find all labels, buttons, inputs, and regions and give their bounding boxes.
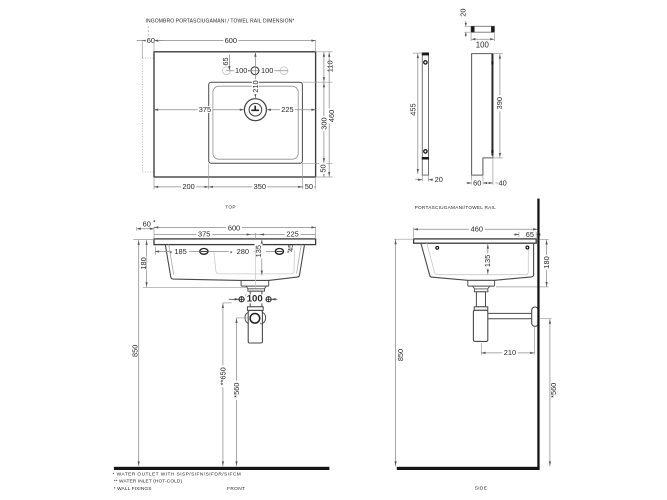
svg-text:50: 50 [318, 164, 327, 172]
svg-text:* WALL FIXINGS: * WALL FIXINGS [114, 486, 152, 492]
svg-text:100: 100 [476, 40, 490, 49]
svg-text:135: 135 [483, 255, 492, 267]
svg-text:460: 460 [327, 110, 336, 122]
svg-text:50: 50 [305, 182, 313, 191]
svg-text:65: 65 [221, 57, 230, 65]
svg-text:185: 185 [174, 247, 186, 256]
svg-text:20: 20 [435, 175, 443, 184]
svg-text:INGOMBRO PORTASCIUGAMANI / TOW: INGOMBRO PORTASCIUGAMANI / TOWEL RAIL DI… [146, 19, 295, 25]
svg-text:100: 100 [261, 66, 273, 75]
svg-text:350: 350 [254, 182, 266, 191]
svg-text:180: 180 [139, 257, 148, 269]
svg-text:*560: *560 [232, 383, 241, 398]
svg-text:110: 110 [326, 60, 335, 72]
svg-text:390: 390 [495, 97, 504, 109]
svg-text:40: 40 [498, 178, 506, 187]
svg-text:60: 60 [473, 178, 481, 187]
svg-text:60: 60 [143, 220, 151, 229]
svg-text:**650: **650 [218, 367, 227, 385]
svg-text:65: 65 [526, 230, 534, 239]
svg-text:280: 280 [237, 247, 249, 256]
svg-text:210: 210 [251, 80, 260, 92]
svg-text:PORTASCIUGAMANI/TOWEL RAIL: PORTASCIUGAMANI/TOWEL RAIL [415, 205, 496, 210]
svg-text:SIDE: SIDE [475, 485, 487, 491]
svg-text:375: 375 [199, 105, 211, 114]
svg-text:850: 850 [131, 345, 140, 357]
svg-text:20: 20 [459, 8, 468, 16]
svg-text:TOP: TOP [225, 205, 236, 211]
svg-text:455: 455 [409, 103, 418, 115]
svg-text:* WATER OUTLET WITH SISP/SIFN: * WATER OUTLET WITH SISP/SIFN/SIFDR/SIFC… [113, 471, 242, 477]
svg-text:** WATER INLET (HOT-COLD): ** WATER INLET (HOT-COLD) [114, 478, 183, 484]
svg-text:460: 460 [471, 225, 483, 234]
svg-text:*560: *560 [549, 383, 558, 398]
svg-text:210: 210 [504, 348, 516, 357]
svg-text:FRONT: FRONT [227, 486, 245, 492]
svg-text:600: 600 [225, 36, 237, 45]
svg-text:225: 225 [281, 105, 293, 114]
svg-text:100: 100 [235, 66, 247, 75]
svg-text:45: 45 [288, 244, 295, 252]
svg-text:200: 200 [182, 182, 194, 191]
svg-text:180: 180 [542, 256, 551, 268]
svg-text:225: 225 [286, 229, 298, 238]
svg-text:375: 375 [198, 229, 210, 238]
svg-text:600: 600 [228, 224, 240, 233]
svg-text:850: 850 [396, 349, 405, 361]
svg-text:100: 100 [247, 293, 263, 304]
